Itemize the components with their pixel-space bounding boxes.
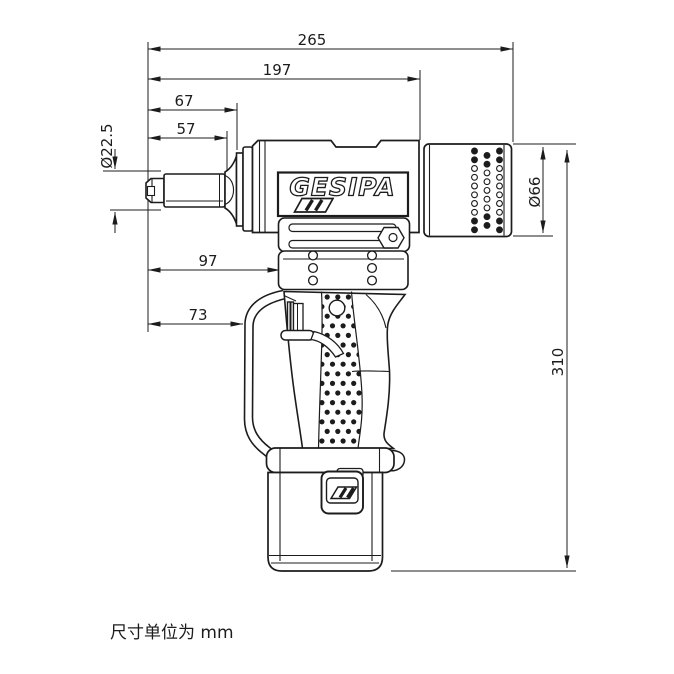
rail-slot-upper	[289, 224, 396, 232]
battery-pack	[267, 448, 405, 571]
brand-logo-mark	[295, 199, 334, 213]
trigger-guard	[281, 331, 314, 341]
collar-ring	[237, 153, 244, 226]
rail-section	[279, 218, 410, 252]
grip-button	[329, 300, 345, 316]
rivet-gun-dimension-drawing: 265 197 67 57 97 73 Ø22.5 Ø66 310	[0, 0, 674, 674]
vent-section	[279, 251, 409, 290]
dim-label-rear-diameter: Ø66	[526, 177, 544, 208]
collar	[243, 147, 253, 231]
nose-piece	[146, 147, 253, 231]
units-note: 尺寸单位为 mm	[110, 623, 234, 643]
dim-label-overall-height: 310	[549, 348, 567, 377]
hex-bolt-pin	[389, 234, 397, 242]
nose-barrel	[164, 174, 225, 207]
rear-cap	[424, 144, 512, 237]
dim-label-nose-to-handle: 97	[198, 252, 217, 270]
dim-label-nose-to-loop: 73	[188, 306, 207, 324]
dim-label-upper-body: 197	[263, 61, 292, 79]
drawing-svg: 265 197 67 57 97 73 Ø22.5 Ø66 310	[0, 0, 674, 674]
brand-plate: GESIPA	[278, 173, 408, 217]
dim-label-nose-diameter: Ø22.5	[98, 123, 116, 168]
dim-label-overall-length: 265	[298, 31, 327, 49]
dim-label-nose-length: 57	[176, 120, 195, 138]
brand-wordmark: GESIPA	[289, 173, 395, 202]
dim-label-front-section: 67	[174, 92, 193, 110]
tool-outline: GESIPA	[146, 141, 512, 572]
battery-top-band	[267, 448, 395, 473]
